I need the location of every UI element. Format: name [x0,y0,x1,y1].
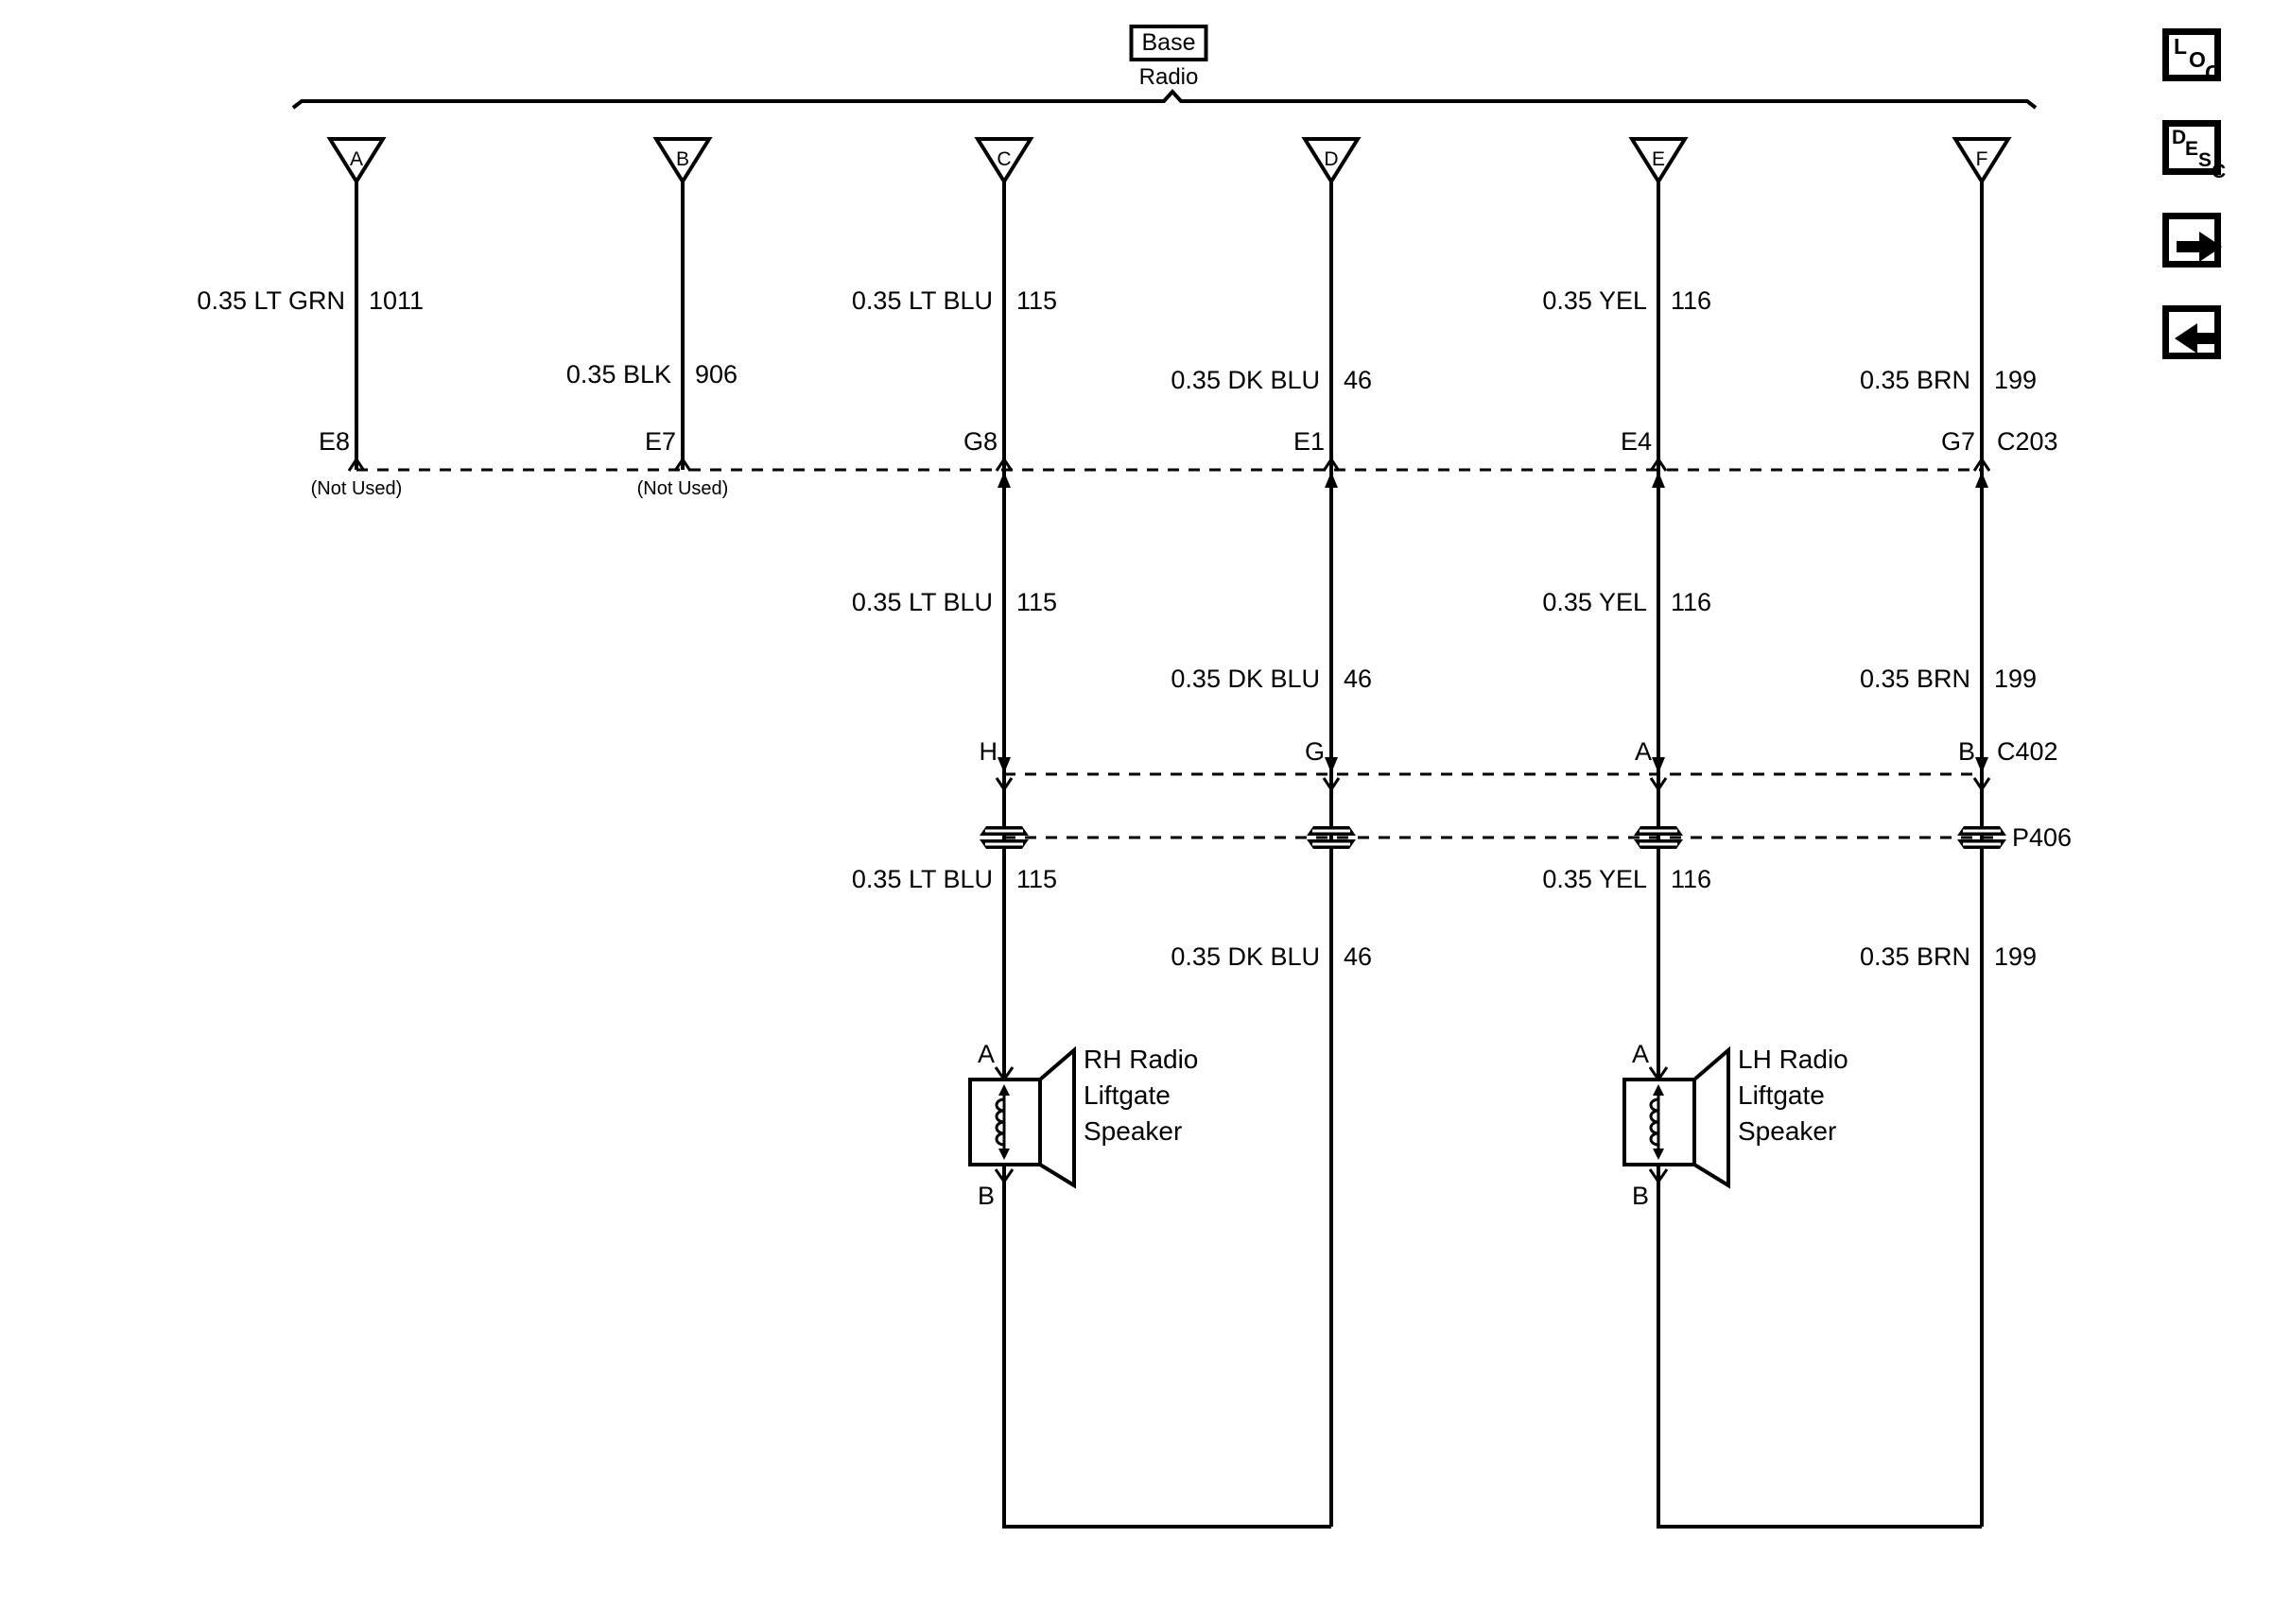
wire-color-label: 0.35 LT BLU [852,286,993,316]
speaker-pin-label: A [978,1040,995,1069]
circuit-number-label: 906 [695,360,737,389]
speaker-rh-icon [970,1050,1074,1185]
right-arrow-icon [2169,219,2228,274]
back-arrow-button[interactable] [2162,305,2221,359]
circuit-number-label: 115 [1016,865,1057,894]
pin-label-c203: G8 [963,427,998,457]
desc-letter: D [2172,128,2186,147]
pin-label-c402: G [1305,737,1325,767]
loc-letter: L [2174,36,2187,58]
speaker-name-line: Speaker [1738,1114,1848,1149]
header-component-label: Radio [1139,62,1199,92]
speaker-name-line: LH Radio [1738,1042,1848,1078]
wire-color-label: 0.35 YEL [1542,865,1647,894]
triangle-a-letter: A [350,148,363,170]
circuit-number-label: 115 [1016,286,1057,316]
speaker-name-line: Liftgate [1738,1078,1848,1114]
pin-label-c203: E4 [1621,427,1652,457]
speaker-name: RH Radio Liftgate Speaker [1084,1042,1198,1149]
pin-label-c203: E8 [319,427,350,457]
circuit-number-label: 46 [1344,665,1372,694]
pin-label-c402: A [1635,737,1652,767]
speaker-lh-icon [1624,1050,1728,1185]
not-used-note: (Not Used) [637,477,729,500]
wire-color-label: 0.35 BRN [1860,366,1970,395]
loc-letter: C [2205,62,2221,84]
loc-button[interactable]: L O C [2162,28,2221,81]
circuit-number-label: 1011 [369,286,424,316]
wire-e-return [1658,1165,1982,1527]
speaker-name-line: RH Radio [1084,1042,1198,1078]
speaker-pin-label: A [1632,1040,1649,1069]
wire-color-label: 0.35 BLK [566,360,671,389]
pin-label-c402: H [980,737,998,767]
circuit-number-label: 46 [1344,366,1372,395]
speaker-name-line: Speaker [1084,1114,1198,1149]
wire-color-label: 0.35 YEL [1542,286,1647,316]
wire-color-label: 0.35 YEL [1542,588,1647,617]
circuit-number-label: 199 [1994,366,2037,395]
wire-color-label: 0.35 DK BLU [1171,366,1320,395]
speaker-pin-label: B [978,1182,995,1211]
wire-color-label: 0.35 DK BLU [1171,942,1320,972]
circuit-number-label: 116 [1671,286,1711,316]
wiring-diagram-page: A B C D E F Base Radio 0.35 LT GRN 1011 … [0,0,2273,1624]
triangle-f-letter: F [1976,148,1988,170]
brace [293,92,2036,108]
wire-color-label: 0.35 BRN [1860,665,1970,694]
triangle-b-letter: B [676,148,689,170]
circuit-number-label: 115 [1016,588,1057,617]
desc-button[interactable]: D E S C [2162,120,2221,175]
wire-color-label: 0.35 LT BLU [852,865,993,894]
desc-letter: E [2185,139,2198,159]
pin-label-c203: E7 [645,427,676,457]
circuit-number-label: 116 [1671,865,1711,894]
connector-name-label: C203 [1997,427,2058,457]
circuit-number-label: 199 [1994,942,2037,972]
triangle-d-letter: D [1324,148,1338,170]
header-variant-badge: Base [1130,25,1208,61]
wire-color-label: 0.35 LT BLU [852,588,993,617]
speaker-name: LH Radio Liftgate Speaker [1738,1042,1848,1149]
left-arrow-icon [2169,312,2228,366]
circuit-number-label: 116 [1671,588,1711,617]
pin-label-c203: G7 [1941,427,1975,457]
wire-color-label: 0.35 DK BLU [1171,665,1320,694]
circuit-number-label: 46 [1344,942,1372,972]
connector-name-label: C402 [1997,737,2058,767]
pin-label-c402: B [1958,737,1975,767]
diagram-line-art: A B C D E F [0,0,2273,1624]
circuit-number-label: 199 [1994,665,2037,694]
speaker-pin-label: B [1632,1182,1649,1211]
c203-terminals [349,459,1989,488]
pin-label-c203: E1 [1293,427,1325,457]
connector-name-label: P406 [2012,823,2072,853]
speaker-name-line: Liftgate [1084,1078,1198,1114]
wire-color-label: 0.35 LT GRN [197,286,345,316]
triangle-c-letter: C [997,148,1011,170]
triangle-e-letter: E [1652,148,1665,170]
loc-letter: O [2189,49,2206,71]
not-used-note: (Not Used) [311,477,403,500]
wire-color-label: 0.35 BRN [1860,942,1970,972]
next-arrow-button[interactable] [2162,213,2221,268]
desc-letter: C [2212,162,2226,181]
wire-c-return [1004,1165,1331,1527]
desc-letter: S [2198,150,2212,170]
